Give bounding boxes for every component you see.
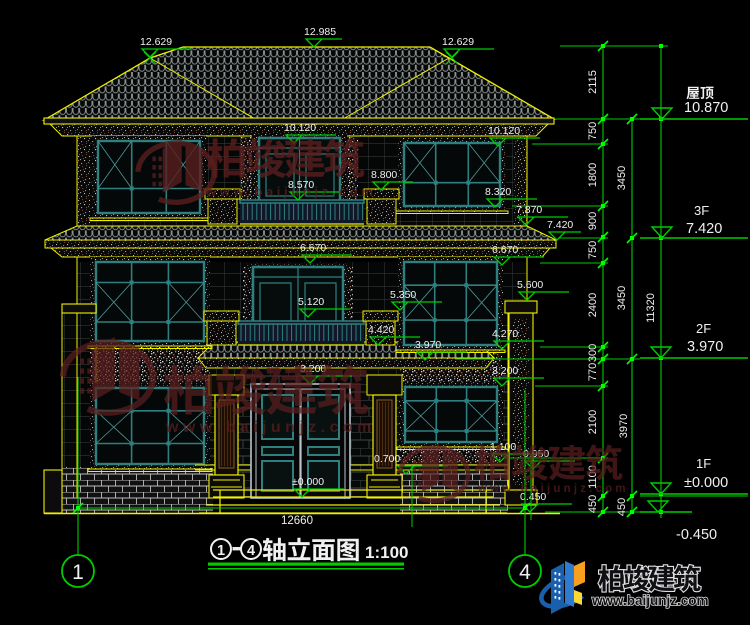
svg-text:1.100: 1.100 [490, 441, 516, 453]
svg-text:8.320: 8.320 [485, 186, 511, 198]
svg-text:6.670: 6.670 [300, 242, 326, 254]
svg-text:0.700: 0.700 [374, 453, 400, 465]
svg-text:3.200: 3.200 [492, 365, 518, 377]
svg-text:770: 770 [587, 363, 599, 381]
svg-text:10.120: 10.120 [284, 122, 316, 134]
svg-text:3.970: 3.970 [415, 339, 441, 351]
svg-text:7.870: 7.870 [516, 204, 542, 216]
svg-text:1: 1 [217, 543, 225, 559]
svg-text:4: 4 [519, 561, 531, 584]
svg-text:w w w . b a i j u n j z . c o: w w w . b a i j u n j z . c o m [205, 184, 373, 199]
svg-text:w w w . b a i j u n j z . c o: w w w . b a i j u n j z . c o m [477, 483, 626, 495]
svg-text:w w w . b a i j u n j z . c o: w w w . b a i j u n j z . c o m [165, 419, 371, 436]
svg-text:8.800: 8.800 [371, 169, 397, 181]
svg-text:7.420: 7.420 [547, 219, 573, 231]
svg-text:3970: 3970 [618, 414, 630, 438]
svg-text:300: 300 [587, 344, 599, 362]
svg-text:3450: 3450 [616, 286, 628, 310]
svg-text:12.629: 12.629 [442, 36, 474, 48]
svg-text:www.baijunjz.com: www.baijunjz.com [591, 593, 709, 608]
svg-text:3F: 3F [694, 203, 709, 218]
svg-text:3.970: 3.970 [687, 339, 723, 355]
svg-text:6.670: 6.670 [492, 244, 518, 256]
svg-text:750: 750 [587, 241, 599, 259]
svg-text:4: 4 [247, 543, 255, 559]
svg-text:12.985: 12.985 [304, 26, 336, 38]
svg-text:11320: 11320 [645, 293, 657, 323]
svg-text:5.350: 5.350 [390, 289, 416, 301]
svg-text:2100: 2100 [587, 410, 599, 434]
svg-text:2F: 2F [696, 321, 711, 336]
svg-text:±0.000: ±0.000 [292, 476, 324, 488]
svg-text:1: 1 [72, 561, 84, 584]
svg-text:4.420: 4.420 [368, 324, 394, 336]
svg-text:1F: 1F [696, 456, 711, 471]
svg-text:3450: 3450 [616, 166, 628, 190]
svg-text:2115: 2115 [587, 70, 599, 94]
svg-text:2400: 2400 [587, 293, 599, 317]
svg-text:5.600: 5.600 [517, 279, 543, 291]
svg-text:10.870: 10.870 [684, 100, 728, 116]
svg-text:±0.000: ±0.000 [684, 475, 728, 491]
svg-text:1:100: 1:100 [365, 543, 408, 562]
svg-text:5.120: 5.120 [298, 296, 324, 308]
svg-text:450: 450 [587, 495, 599, 513]
svg-text:900: 900 [587, 212, 599, 230]
svg-text:7.420: 7.420 [686, 221, 722, 237]
svg-text:-0.450: -0.450 [676, 527, 717, 543]
svg-text:10.120: 10.120 [488, 125, 520, 137]
svg-text:1800: 1800 [587, 163, 599, 187]
svg-text:4.270: 4.270 [492, 328, 518, 340]
svg-text:450: 450 [616, 498, 628, 516]
svg-text:12.629: 12.629 [140, 36, 172, 48]
svg-text:750: 750 [587, 122, 599, 140]
svg-text:12660: 12660 [281, 515, 313, 527]
